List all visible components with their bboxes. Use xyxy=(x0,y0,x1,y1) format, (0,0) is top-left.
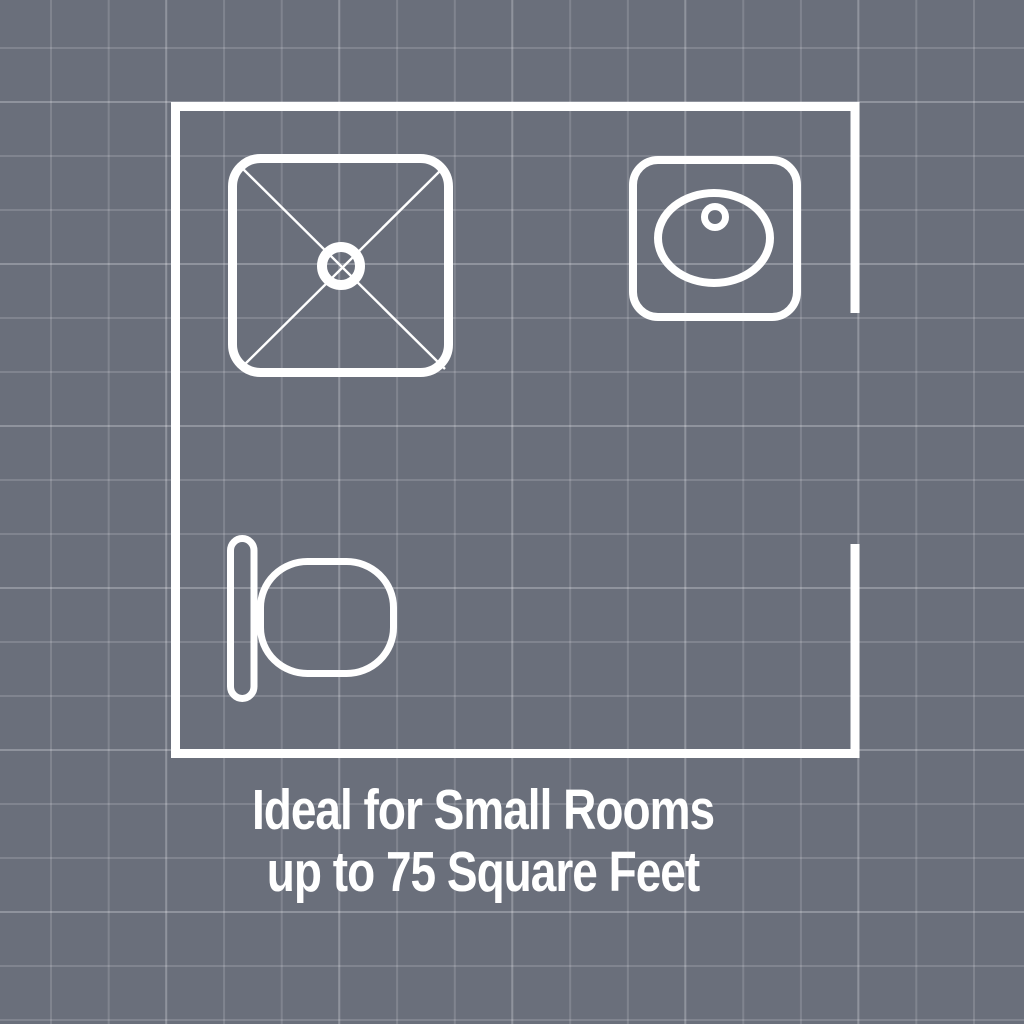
shower-icon xyxy=(233,159,449,373)
caption-line-2: up to 75 Square Feet xyxy=(252,841,714,903)
door-opening xyxy=(851,313,859,544)
caption: Ideal for Small Rooms up to 75 Square Fe… xyxy=(252,779,714,903)
toilet-bowl xyxy=(261,562,394,674)
sink-faucet-icon xyxy=(705,207,726,228)
sink-icon xyxy=(633,160,797,317)
toilet-icon xyxy=(231,539,394,699)
caption-line-1: Ideal for Small Rooms xyxy=(252,779,714,841)
floor-plan-infographic: Ideal for Small Rooms up to 75 Square Fe… xyxy=(0,0,1024,1024)
toilet-tank xyxy=(231,539,255,699)
